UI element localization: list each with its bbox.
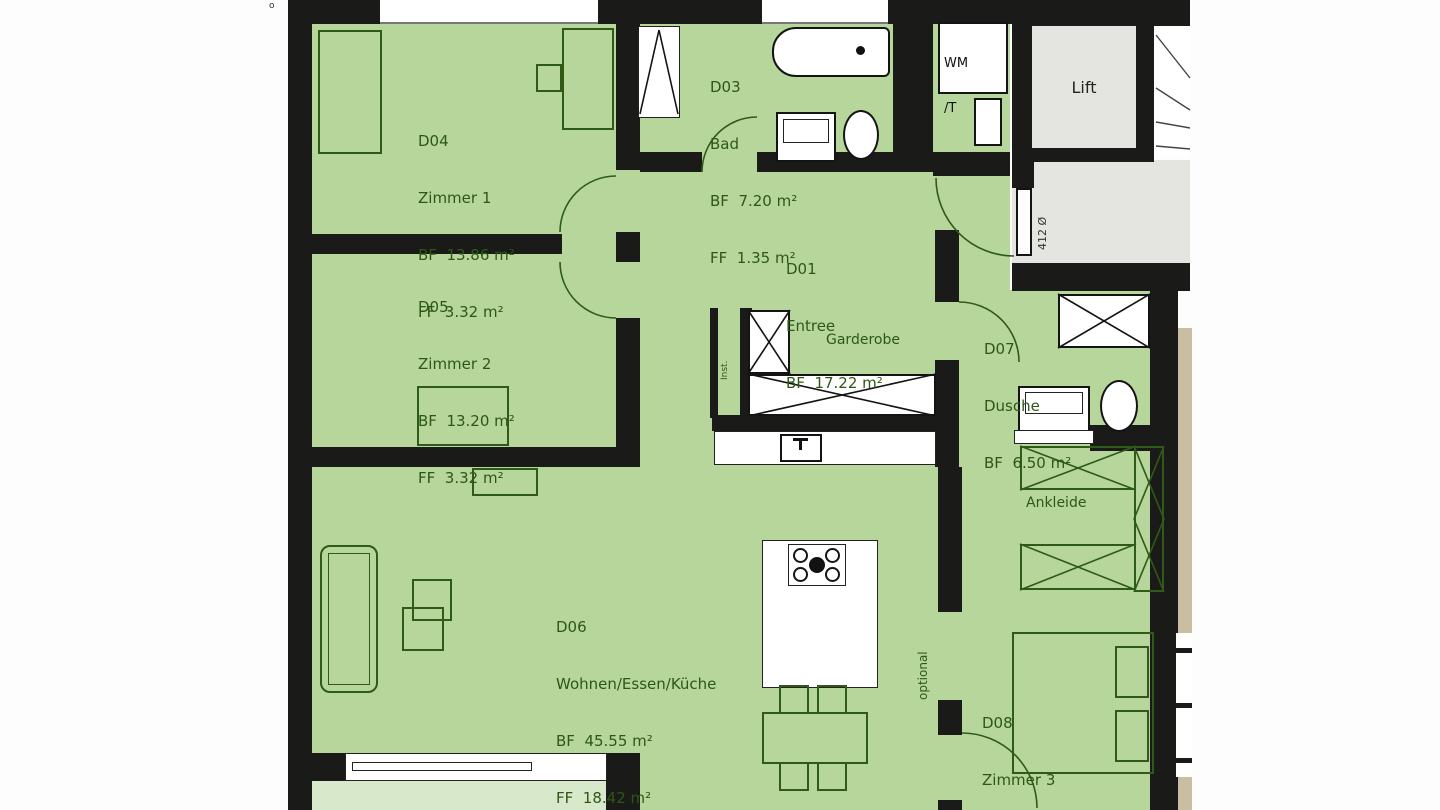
room-id: D04	[418, 132, 515, 151]
wall	[1012, 156, 1034, 188]
window-tick	[1176, 758, 1192, 763]
room-id: D01	[786, 260, 883, 279]
room-name: Zimmer 3	[982, 771, 1079, 790]
door-leaf	[974, 98, 1002, 146]
nightstand	[536, 64, 562, 92]
room-name: Wohnen/Essen/Küche	[556, 675, 716, 694]
wall	[938, 700, 962, 735]
stove-center	[809, 557, 825, 573]
room-bf: BF 17.22 m²	[786, 374, 883, 393]
stove-burner	[793, 548, 808, 563]
room-label-d05: D05 Zimmer 2 BF 13.20 m² FF 3.32 m²	[418, 260, 515, 526]
wall	[1136, 26, 1154, 158]
toilet	[1100, 380, 1138, 432]
toilet	[843, 110, 879, 160]
wall	[938, 467, 962, 612]
room-label-d01: D01 Entree BF 17.22 m²	[786, 222, 883, 431]
floor-plan: D04 Zimmer 1 BF 13.86 m² FF 3.32 m² D05 …	[0, 0, 1440, 810]
pillow	[1115, 710, 1149, 762]
chair	[779, 762, 809, 791]
room-bf: BF 45.55 m²	[556, 732, 716, 751]
room-name: Zimmer 2	[418, 355, 515, 374]
window-tick	[1176, 703, 1192, 708]
wall	[935, 230, 959, 302]
chair	[817, 685, 847, 714]
chair	[817, 762, 847, 791]
room-label-d07: D07 Dusche BF 6.50 m²	[984, 302, 1071, 511]
optional-annotation: optional	[916, 608, 930, 700]
wall	[1012, 263, 1190, 291]
wall	[312, 753, 346, 781]
window	[762, 0, 888, 24]
wall	[1012, 0, 1190, 26]
wall	[1012, 26, 1032, 156]
stove-burner	[825, 548, 840, 563]
room-bf: BF 6.50 m²	[984, 454, 1071, 473]
room-id: D08	[982, 714, 1079, 733]
room-name: Zimmer 1	[418, 189, 515, 208]
wt-line: /T	[944, 101, 968, 116]
corner-mark: o	[269, 1, 275, 11]
lift-label: Lift	[1032, 26, 1136, 148]
ankleide-label: Ankleide	[1026, 494, 1086, 513]
wm-t-label: WM /T	[944, 26, 968, 146]
pillow	[1115, 646, 1149, 698]
room-name: Bad	[710, 135, 797, 154]
stairwell-area	[1154, 26, 1190, 156]
room-name: Dusche	[984, 397, 1071, 416]
wall	[888, 0, 1012, 24]
garderobe-label: Garderobe	[826, 331, 900, 350]
wall	[710, 308, 718, 418]
bed	[562, 28, 614, 130]
wall	[288, 0, 312, 810]
wall	[893, 24, 933, 152]
wardrobe	[318, 30, 382, 154]
kitchen-counter	[714, 431, 936, 465]
wall	[616, 232, 640, 262]
corridor-note: 412 Ø	[1036, 190, 1049, 250]
wm-line: WM	[944, 56, 968, 71]
room-label-d03: D03 Bad BF 7.20 m² FF 1.35 m²	[710, 40, 797, 306]
wall	[933, 152, 1010, 176]
chair	[779, 685, 809, 714]
bathtub-drain	[856, 46, 865, 55]
stove-burner	[825, 567, 840, 582]
wardrobe-box	[1134, 446, 1164, 592]
room-bf: BF 13.20 m²	[418, 412, 515, 431]
dining-table	[762, 712, 868, 764]
wall	[616, 24, 640, 170]
wall	[938, 800, 962, 810]
room-label-d06: D06 Wohnen/Essen/Küche BF 45.55 m² FF 18…	[556, 580, 716, 810]
window	[380, 0, 598, 24]
room-bf: BF 7.20 m²	[710, 192, 797, 211]
stove-burner	[793, 567, 808, 582]
room-ff: FF 18.42 m²	[556, 789, 716, 808]
shaft-box	[638, 26, 680, 118]
wall	[616, 318, 640, 467]
wall	[288, 0, 380, 24]
window-tick	[1176, 648, 1192, 653]
room-id: D05	[418, 298, 515, 317]
room-id: D07	[984, 340, 1071, 359]
wall	[598, 0, 762, 24]
shower	[1058, 294, 1150, 348]
entry-door-leaf	[1016, 188, 1032, 256]
wardrobe-box	[1020, 544, 1136, 590]
sliding-door-panel	[352, 762, 532, 771]
sofa-cushion	[328, 553, 370, 685]
room-ff: FF 1.35 m²	[710, 249, 797, 268]
wall	[640, 152, 702, 172]
wall	[935, 360, 959, 467]
kitchen-tap	[793, 438, 808, 441]
room-ff: FF 3.32 m²	[418, 469, 515, 488]
wardrobe-box	[748, 310, 790, 374]
room-id: D03	[710, 78, 797, 97]
room-label-d08: D08 Zimmer 3 BF 16.47 m² FF 4.81 m²	[982, 676, 1079, 810]
room-id: D06	[556, 618, 716, 637]
armchair	[402, 607, 444, 651]
shaft-annotation: Inst.	[720, 316, 730, 380]
